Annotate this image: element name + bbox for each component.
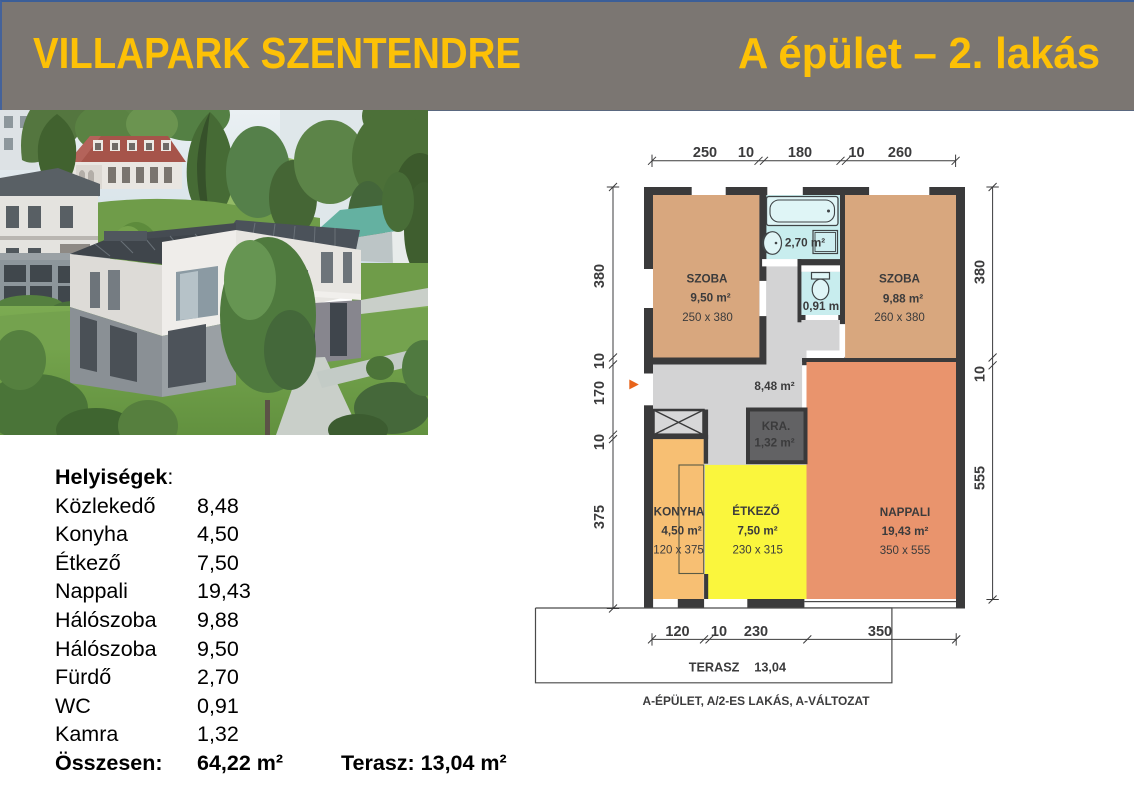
svg-text:10: 10 — [592, 353, 608, 369]
svg-text:10: 10 — [848, 145, 864, 161]
svg-text:120 x 375: 120 x 375 — [653, 545, 704, 557]
svg-text:350 x 555: 350 x 555 — [880, 545, 931, 557]
svg-text:8,48 m²: 8,48 m² — [754, 380, 794, 393]
svg-text:260 x 380: 260 x 380 — [874, 312, 925, 324]
svg-text:350: 350 — [868, 624, 892, 640]
svg-text:9,50 m²: 9,50 m² — [690, 292, 730, 305]
svg-text:1,32 m²: 1,32 m² — [754, 437, 794, 450]
svg-text:9,88 m²: 9,88 m² — [883, 293, 923, 306]
svg-text:A-ÉPÜLET, A/2-ES LAKÁS, A-VÁLT: A-ÉPÜLET, A/2-ES LAKÁS, A-VÁLTOZAT — [642, 693, 870, 708]
svg-text:120: 120 — [665, 624, 689, 640]
svg-text:250 x 380: 250 x 380 — [682, 312, 733, 324]
svg-text:SZOBA: SZOBA — [687, 273, 728, 286]
svg-text:TERASZ: TERASZ — [689, 661, 740, 675]
svg-text:230: 230 — [744, 624, 768, 640]
svg-text:13,04: 13,04 — [754, 661, 786, 675]
svg-text:555: 555 — [973, 466, 989, 490]
svg-text:180: 180 — [788, 145, 812, 161]
svg-text:10: 10 — [973, 366, 989, 382]
svg-text:0,91 m: 0,91 m — [803, 300, 839, 313]
svg-text:KONYHA: KONYHA — [654, 506, 705, 519]
svg-text:4,50 m²: 4,50 m² — [661, 525, 701, 538]
svg-text:2,70 m²: 2,70 m² — [785, 237, 825, 250]
svg-text:10: 10 — [738, 145, 754, 161]
svg-text:380: 380 — [592, 264, 608, 288]
svg-text:10: 10 — [711, 624, 727, 640]
svg-text:NAPPALI: NAPPALI — [880, 506, 930, 519]
svg-text:375: 375 — [592, 505, 608, 529]
svg-text:SZOBA: SZOBA — [879, 273, 920, 286]
svg-text:KRA.: KRA. — [762, 420, 791, 433]
svg-text:ÉTKEZŐ: ÉTKEZŐ — [732, 505, 779, 518]
svg-text:10: 10 — [592, 434, 608, 450]
svg-text:7,50 m²: 7,50 m² — [737, 525, 777, 538]
svg-text:380: 380 — [973, 260, 989, 284]
svg-text:19,43 m²: 19,43 m² — [882, 525, 929, 538]
svg-text:170: 170 — [592, 381, 608, 405]
svg-text:250: 250 — [693, 145, 717, 161]
svg-text:260: 260 — [888, 145, 912, 161]
svg-text:230 x 315: 230 x 315 — [732, 545, 783, 557]
